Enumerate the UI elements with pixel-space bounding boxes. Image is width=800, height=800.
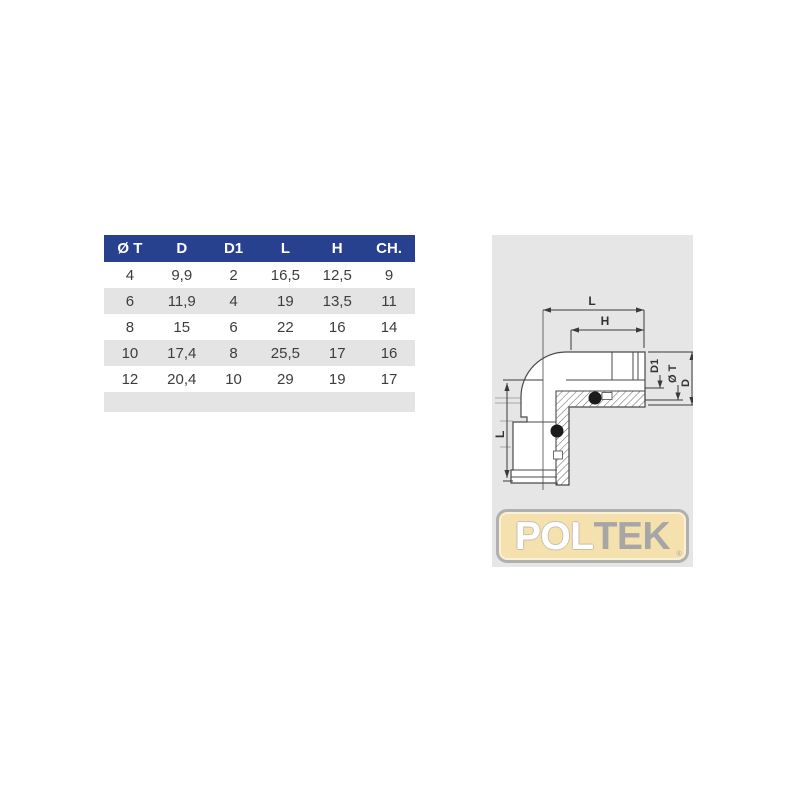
dim-label-h: H xyxy=(601,314,610,328)
table-cell: 9,9 xyxy=(156,262,208,288)
header-row: Ø T D D1 L H CH. xyxy=(104,235,415,262)
size-table: Ø T D D1 L H CH. 49,9216,512,59611,94191… xyxy=(104,235,415,412)
table-cell: 10 xyxy=(208,366,260,392)
table-cell xyxy=(259,392,311,412)
section-hatch xyxy=(556,391,645,485)
size-table-body: 49,9216,512,59611,941913,511815622161410… xyxy=(104,262,415,412)
o-ring xyxy=(589,392,602,405)
table-cell: 2 xyxy=(208,262,260,288)
table-cell: 17,4 xyxy=(156,340,208,366)
table-cell: 12 xyxy=(104,366,156,392)
collet-claw xyxy=(602,393,612,400)
table-cell: 16 xyxy=(311,314,363,340)
table-cell: 15 xyxy=(156,314,208,340)
col-header-ot: Ø T xyxy=(104,235,156,262)
table-cell: 19 xyxy=(311,366,363,392)
table-cell: 6 xyxy=(208,314,260,340)
table-cell: 11 xyxy=(363,288,415,314)
table-row: 49,9216,512,59 xyxy=(104,262,415,288)
table-cell: 25,5 xyxy=(259,340,311,366)
table-row: 1220,410291917 xyxy=(104,366,415,392)
table-cell: 17 xyxy=(311,340,363,366)
fitting-body-outline xyxy=(511,352,645,485)
table-cell: 16,5 xyxy=(259,262,311,288)
table-cell: 4 xyxy=(208,288,260,314)
table-cell xyxy=(311,392,363,412)
diagram-panel: L H L D1 Ø T D POLTEK ® xyxy=(492,235,693,567)
dim-label-d1: D1 xyxy=(649,359,661,373)
table-cell: 19 xyxy=(259,288,311,314)
table-cell: 11,9 xyxy=(156,288,208,314)
logo-text-pol: POL xyxy=(515,517,594,556)
table-row xyxy=(104,392,415,412)
table-row: 8156221614 xyxy=(104,314,415,340)
table-row: 1017,4825,51716 xyxy=(104,340,415,366)
table-cell: 10 xyxy=(104,340,156,366)
dim-label-length-left: L xyxy=(493,431,507,438)
table-cell: 8 xyxy=(104,314,156,340)
table-cell: 8 xyxy=(208,340,260,366)
table-cell: 12,5 xyxy=(311,262,363,288)
collet-claw xyxy=(554,451,563,459)
size-table-head: Ø T D D1 L H CH. xyxy=(104,235,415,262)
o-ring xyxy=(551,425,564,438)
dim-label-tube-dia: Ø T xyxy=(667,364,679,383)
table-cell xyxy=(104,392,156,412)
table-cell: 22 xyxy=(259,314,311,340)
table-cell xyxy=(208,392,260,412)
col-header-h: H xyxy=(311,235,363,262)
col-header-ch: CH. xyxy=(363,235,415,262)
table-cell: 9 xyxy=(363,262,415,288)
poltek-logo: POLTEK ® xyxy=(496,509,689,563)
col-header-d1: D1 xyxy=(208,235,260,262)
logo-text-tek: TEK xyxy=(594,517,671,556)
table-cell: 20,4 xyxy=(156,366,208,392)
col-header-d: D xyxy=(156,235,208,262)
table-cell: 13,5 xyxy=(311,288,363,314)
table-cell: 14 xyxy=(363,314,415,340)
table-cell xyxy=(363,392,415,412)
table-cell: 4 xyxy=(104,262,156,288)
registered-mark: ® xyxy=(676,551,681,558)
table-row: 611,941913,511 xyxy=(104,288,415,314)
col-header-l: L xyxy=(259,235,311,262)
table-cell xyxy=(156,392,208,412)
table-cell: 29 xyxy=(259,366,311,392)
table-cell: 6 xyxy=(104,288,156,314)
dim-label-outer-dia: D xyxy=(680,379,692,387)
dim-label-length-top: L xyxy=(588,294,595,308)
table-cell: 16 xyxy=(363,340,415,366)
table-cell: 17 xyxy=(363,366,415,392)
